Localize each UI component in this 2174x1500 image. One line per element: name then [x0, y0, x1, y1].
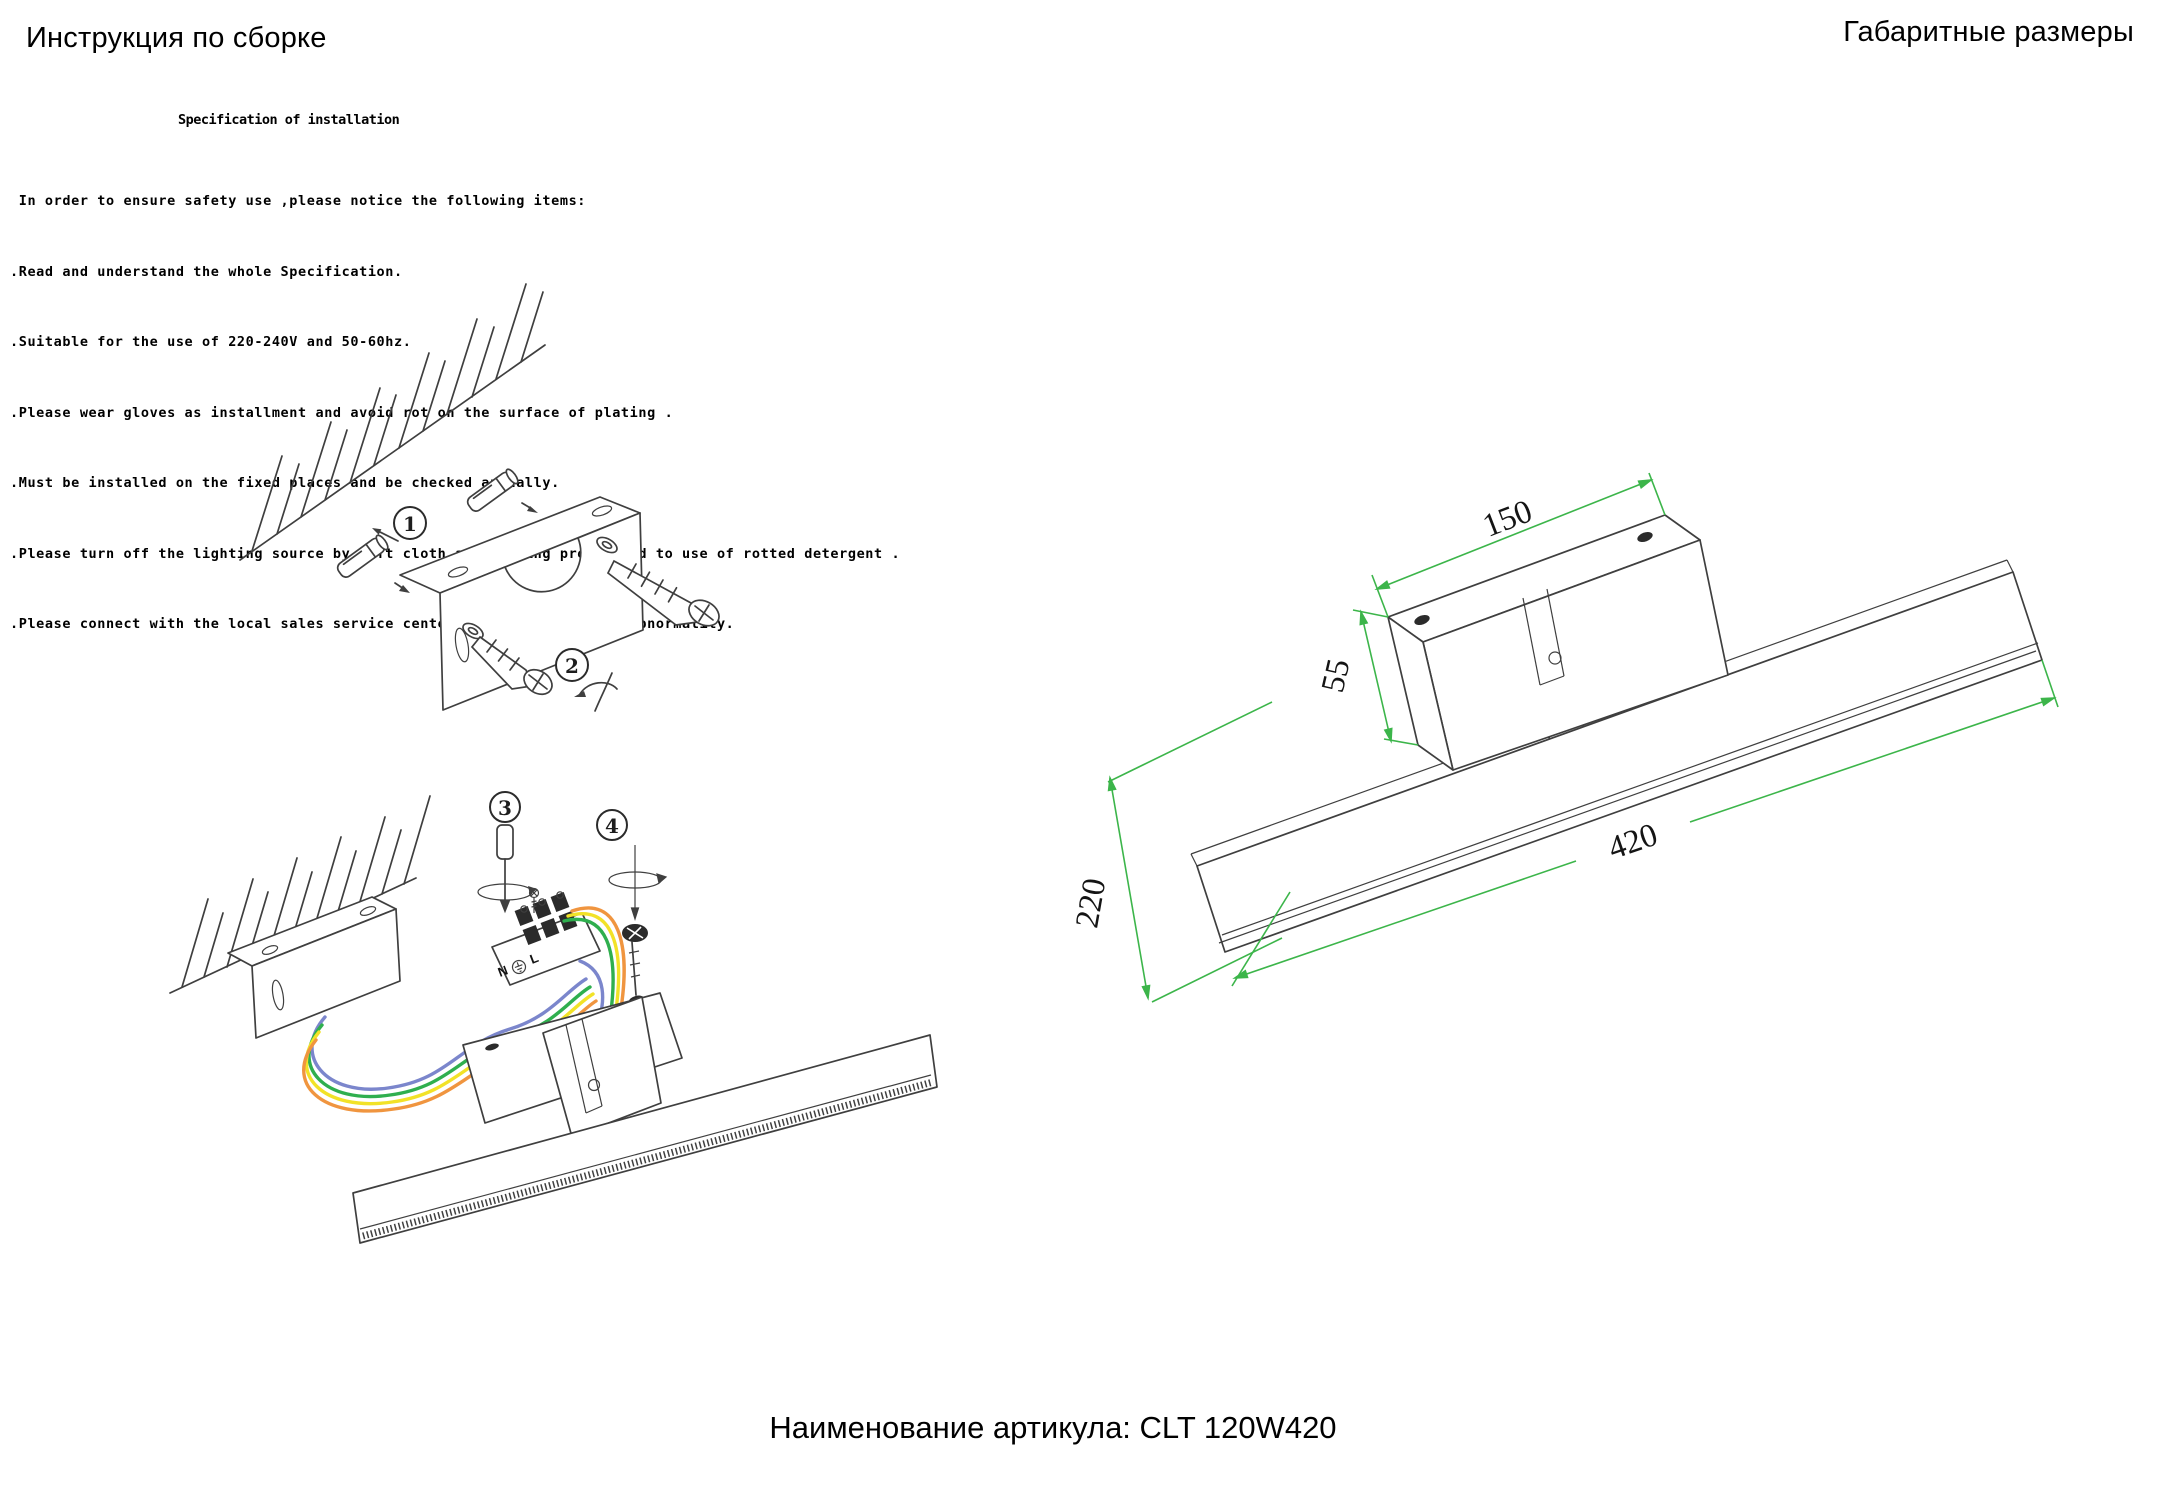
diagram-bracket-mounting: 1 2 [170, 245, 730, 775]
dim-value-150: 150 [1478, 493, 1537, 544]
spec-heading: Specification of installation [178, 112, 399, 128]
dim-value-420: 420 [1604, 817, 1663, 867]
dim-value-55: 55 [1315, 656, 1358, 696]
step-number: 1 [403, 512, 417, 536]
diagram-overall-dimensions: 150 55 420 220 [1050, 430, 2110, 1030]
diagram-wiring: N L 3 [120, 785, 950, 1270]
page-title-dimensions: Габаритные размеры [1843, 16, 2134, 49]
lamp-fixture [353, 993, 937, 1243]
instruction-sheet: Инструкция по сборке Габаритные размеры … [0, 0, 2174, 1500]
page-title-assembly: Инструкция по сборке [26, 22, 327, 55]
dim-value-220: 220 [1069, 876, 1113, 931]
article-name: Наименование артикула: CLT 120W420 [0, 1410, 2106, 1446]
wall-anchor-icon [335, 534, 410, 593]
wall-anchor-icon [465, 468, 538, 514]
step-number: 3 [498, 796, 512, 820]
step-4-marker: 4 [597, 810, 666, 919]
step-number: 4 [605, 814, 619, 838]
screw-icon [622, 924, 648, 995]
wall-hatching [240, 284, 545, 560]
screwdriver-icon [497, 825, 513, 911]
step-2-marker: 2 [556, 649, 617, 711]
spec-line: In order to ensure safety use ,please no… [10, 190, 900, 214]
step-number: 2 [565, 654, 579, 678]
rotate-arrow-icon [478, 884, 537, 900]
step-3-marker: 3 [478, 792, 537, 911]
mounting-bracket [228, 897, 400, 1038]
rotate-arrow-icon [609, 845, 666, 919]
